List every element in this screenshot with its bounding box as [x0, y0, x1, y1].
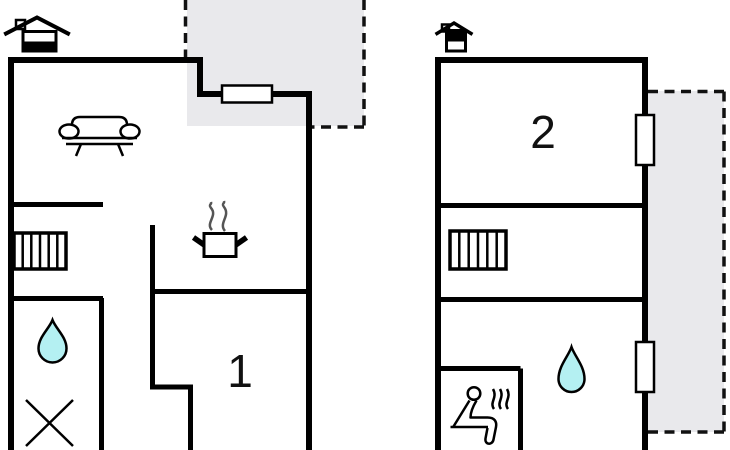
cross-icon — [26, 400, 73, 446]
cooking-pot-icon — [194, 201, 247, 257]
house-lower-level-icon — [6, 18, 68, 52]
window — [636, 342, 654, 392]
room-label-1: 1 — [227, 345, 253, 397]
window — [636, 115, 654, 165]
terrace-dashed-area — [186, 0, 365, 127]
first-floor-plan: 2 — [436, 23, 724, 450]
sofa-icon — [60, 117, 140, 156]
balcony-dashed-area — [648, 91, 724, 432]
house-upper-level-icon — [437, 23, 471, 51]
floor-plan-image: 1 — [0, 0, 730, 450]
water-drop-icon — [559, 347, 585, 392]
window — [222, 86, 272, 103]
sauna-icon — [451, 387, 509, 444]
ground-floor-plan: 1 — [6, 0, 364, 450]
water-drop-icon — [39, 320, 67, 362]
radiator-icon — [450, 231, 506, 269]
radiator-icon — [14, 233, 66, 269]
room-label-2: 2 — [530, 106, 556, 158]
